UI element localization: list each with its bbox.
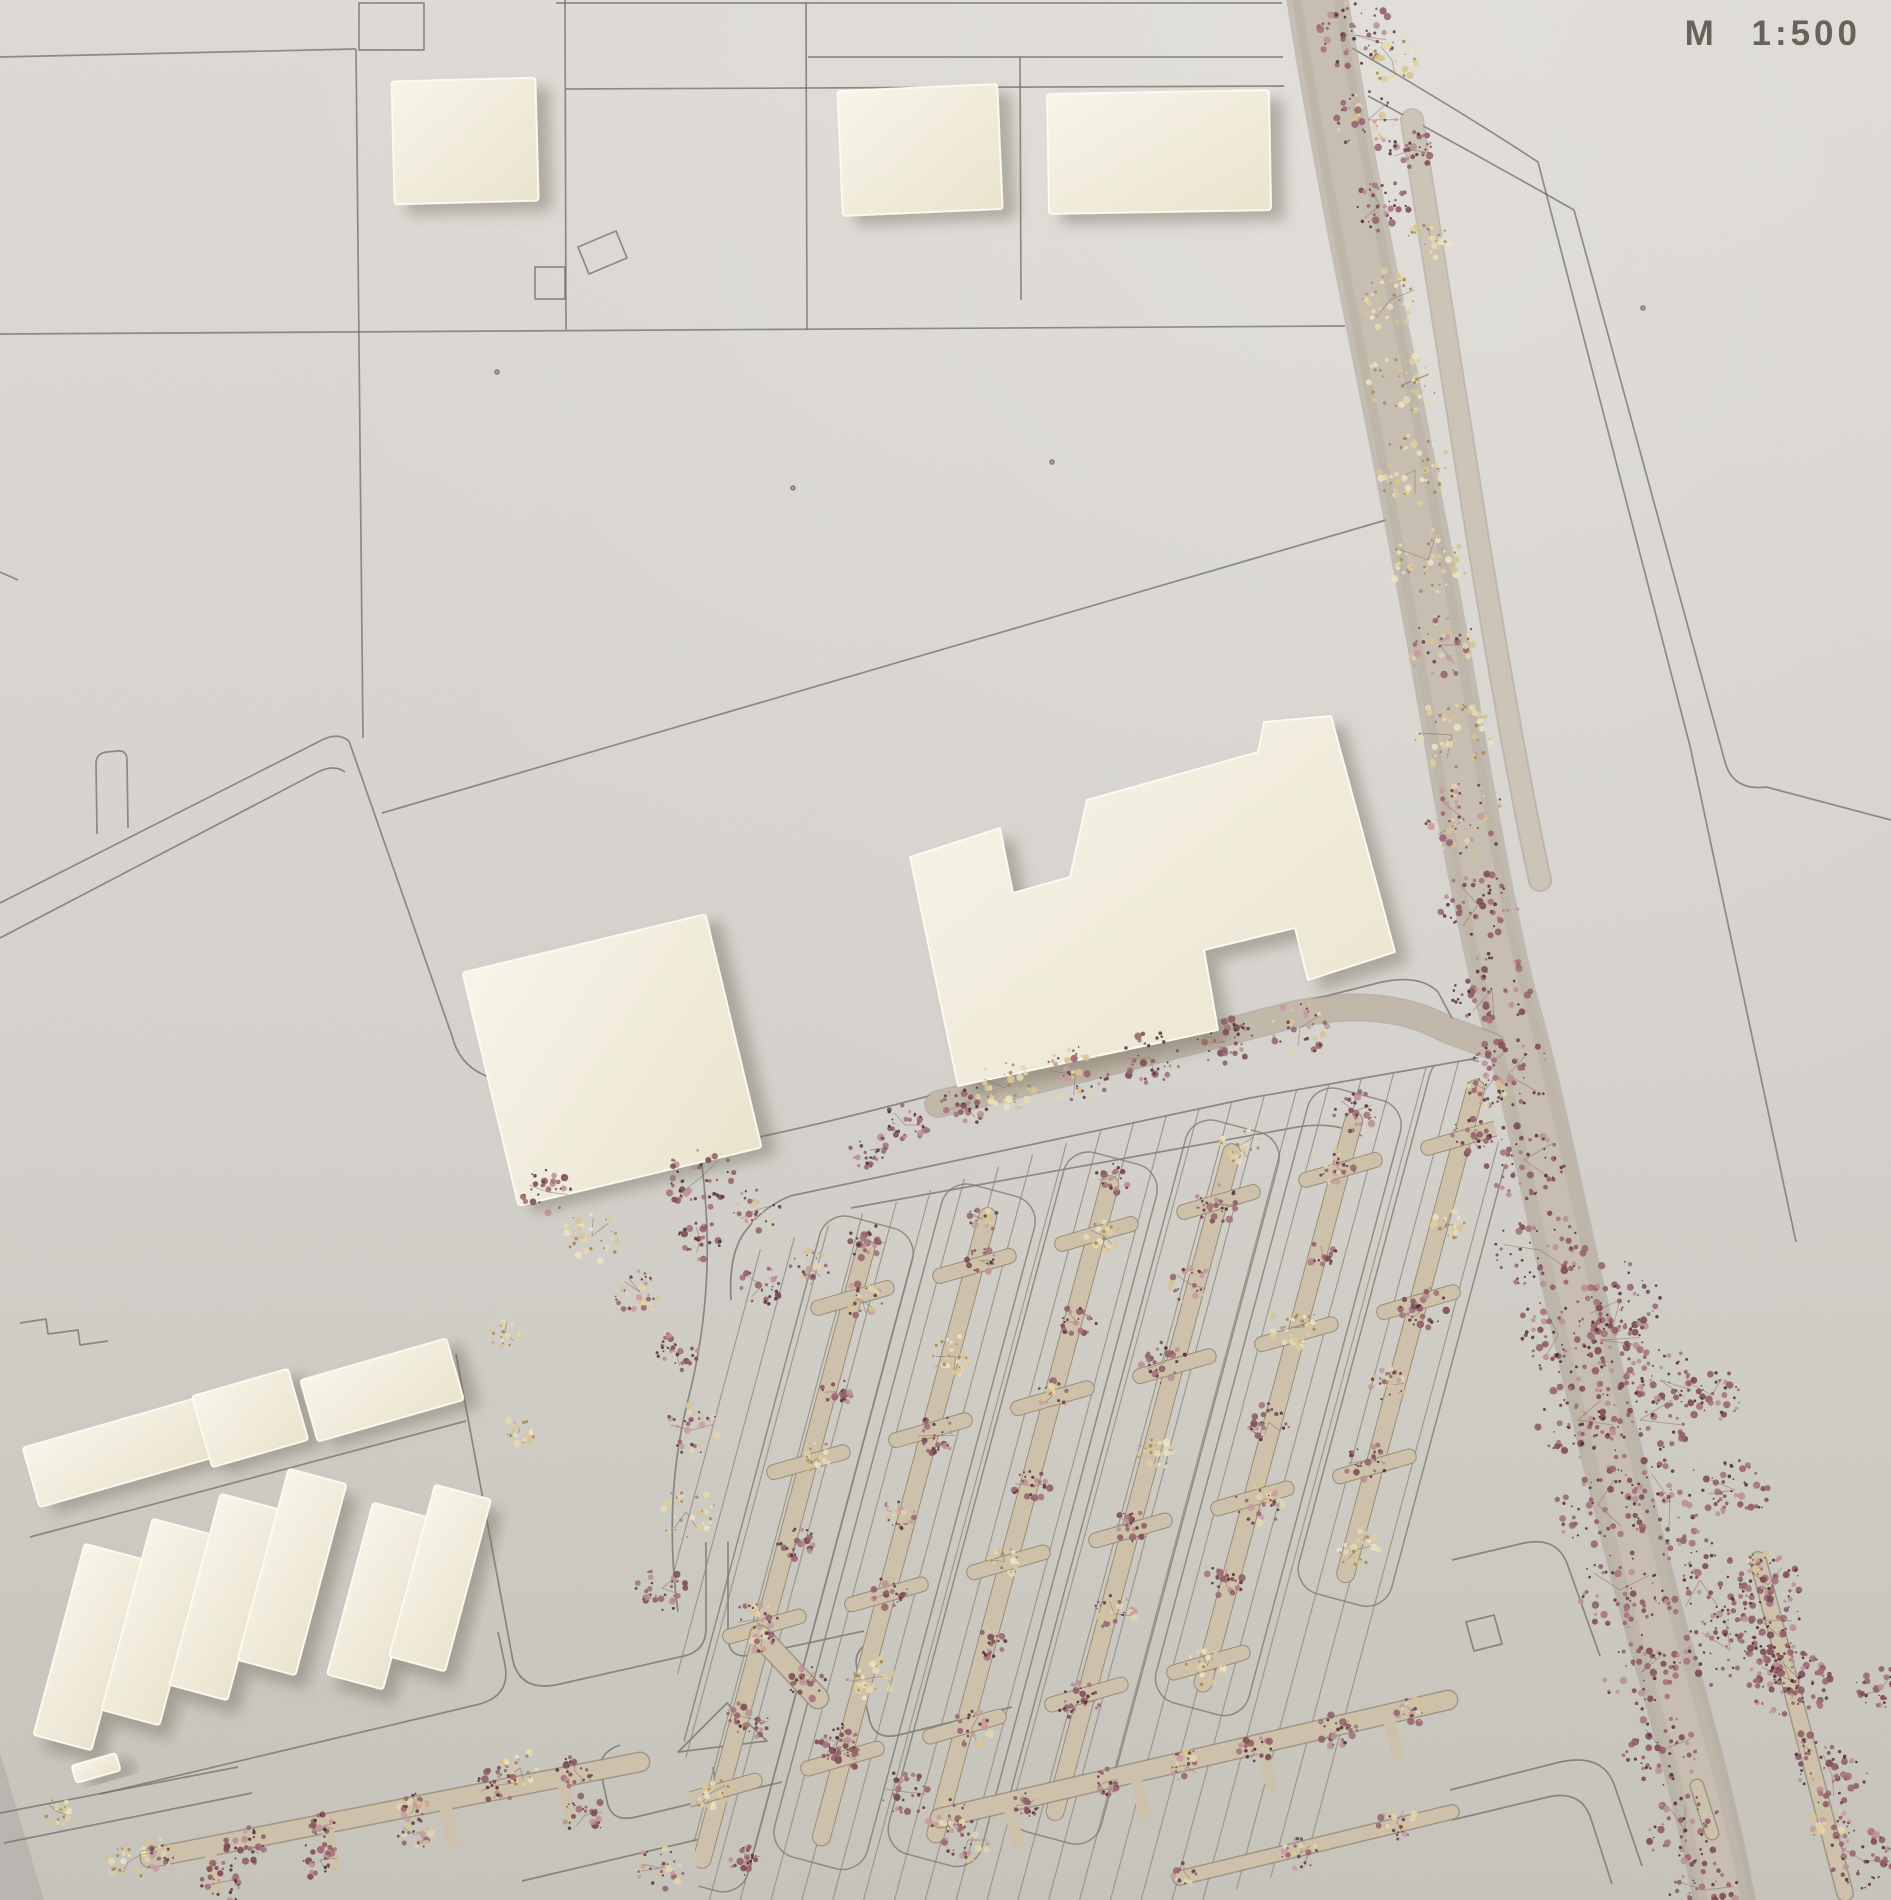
paper-grain [0,0,1891,1900]
site-model-photo: M 1:500 [0,0,1891,1900]
scale-label: M 1:500 [1685,14,1861,54]
model-scene [0,0,1891,1900]
